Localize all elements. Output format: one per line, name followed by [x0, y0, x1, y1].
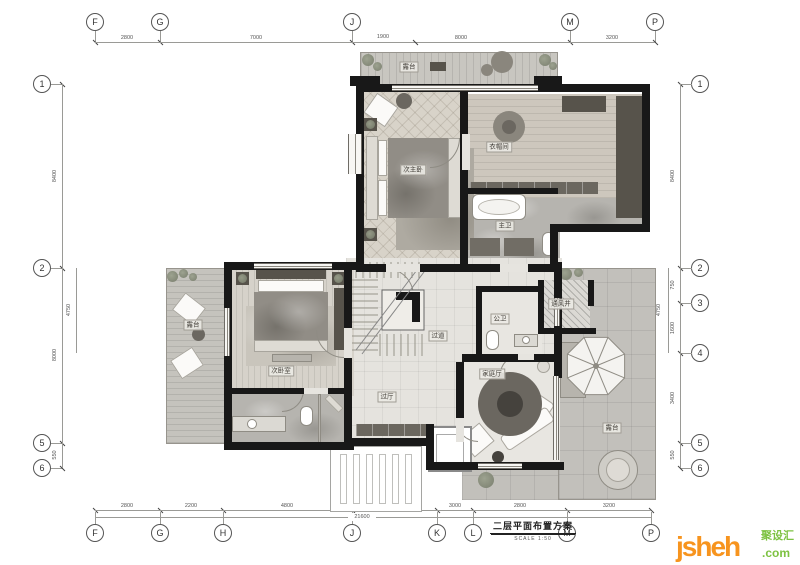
dim-text: 550	[669, 444, 677, 466]
wall	[588, 280, 594, 306]
plant	[238, 274, 247, 283]
door-opening	[456, 418, 464, 442]
grid-bubble-right: 2	[691, 259, 709, 277]
staircase	[350, 260, 428, 358]
grid-line	[95, 512, 96, 524]
wall	[538, 280, 544, 334]
bathtub-basin	[478, 199, 520, 215]
dim-text: 4800	[273, 502, 301, 510]
pillows	[258, 280, 324, 292]
plant	[362, 54, 374, 66]
room-label-corridor: 过道	[429, 331, 448, 342]
grid-bubble-bottom: F	[86, 524, 104, 542]
toilet	[300, 406, 313, 426]
pillow	[378, 180, 387, 216]
dim-text: 8400	[669, 165, 677, 187]
dim-text: 1600	[669, 317, 677, 339]
sideboard	[356, 424, 428, 436]
plant	[478, 472, 494, 488]
dim-line-left-inner	[76, 268, 77, 353]
grid-bubble-top: P	[646, 13, 664, 31]
dim-line-top	[95, 42, 655, 43]
room-label-secondary-bed: 次卧室	[268, 366, 294, 377]
pergola-slat	[405, 454, 412, 504]
dim-text: 8400	[51, 165, 59, 187]
coffee-table	[430, 62, 446, 71]
vanity-counter	[232, 416, 286, 432]
grid-bubble-left: 2	[33, 259, 51, 277]
window	[478, 463, 522, 469]
drawing-title-block: 二层平面布置方案 SCALE 1:50	[488, 516, 578, 542]
door-opening	[500, 264, 528, 272]
pillow	[378, 140, 387, 176]
dim-text: 4750	[655, 299, 663, 321]
plant	[189, 273, 197, 281]
wall	[538, 328, 596, 334]
drawing-scale: SCALE 1:50	[488, 536, 578, 542]
dim-line-right	[680, 84, 681, 468]
window	[553, 376, 559, 460]
grid-bubble-left: 6	[33, 459, 51, 477]
floor-terrace-right-strip	[462, 468, 558, 500]
wall	[466, 188, 558, 194]
door-opening	[386, 264, 420, 272]
sink	[522, 336, 530, 344]
pergola-slat	[340, 454, 347, 504]
pergola-slat	[379, 454, 386, 504]
grid-bubble-left: 1	[33, 75, 51, 93]
jsheh-watermark-logo: jsheh 聚设汇 .com	[676, 525, 794, 561]
bath-mat	[504, 238, 534, 256]
round-rug-center	[497, 391, 523, 417]
floor-plan-sheet: FGJMPFGHJKLMP125612345628007000800032001…	[0, 0, 800, 565]
dim-line-left	[62, 84, 63, 468]
dim-text: 2800	[506, 502, 534, 510]
grid-bubble-top: M	[561, 13, 579, 31]
dim-text: 3400	[669, 387, 677, 409]
bed-headboard	[366, 136, 378, 220]
logo-brand-text: jsheh	[676, 531, 739, 563]
shower-partition	[318, 394, 321, 444]
wall	[460, 92, 468, 268]
window	[348, 134, 362, 174]
plant	[366, 230, 375, 239]
dim-text: 2800	[113, 502, 141, 510]
room-label-terrace-right: 露台	[603, 423, 622, 434]
grid-line	[473, 512, 474, 524]
grid-bubble-left: 5	[33, 434, 51, 452]
cabinet	[562, 96, 606, 112]
window	[392, 85, 538, 91]
bed-sheet	[254, 340, 328, 352]
dim-text: 3200	[595, 502, 623, 510]
room-label-terrace-top: 露台	[400, 62, 419, 73]
round-chair-seat	[606, 458, 630, 482]
pergola-slat	[366, 454, 373, 504]
wall	[642, 84, 650, 232]
wall	[550, 224, 650, 232]
grid-bubble-right: 6	[691, 459, 709, 477]
dim-text: 8000	[447, 34, 475, 42]
dim-text: 8000	[51, 344, 59, 366]
grid-bubble-right: 5	[691, 434, 709, 452]
window	[254, 263, 332, 269]
room-label-master-bath: 主卫	[496, 221, 515, 232]
plant	[373, 62, 382, 71]
wall	[350, 76, 380, 86]
grid-bubble-bottom: H	[214, 524, 232, 542]
wall	[224, 262, 232, 450]
bed-headboard	[256, 270, 326, 279]
grid-bubble-right: 4	[691, 344, 709, 362]
room-label-cloakroom: 衣帽间	[486, 142, 512, 153]
plant	[366, 120, 375, 129]
room-label-second-master: 次主卧	[400, 165, 426, 176]
dim-text: 4750	[65, 299, 73, 321]
wall	[356, 84, 364, 272]
stool	[396, 93, 412, 109]
grid-bubble-top: J	[343, 13, 361, 31]
window	[224, 308, 230, 356]
grid-line	[223, 512, 224, 524]
wall	[534, 76, 562, 88]
dim-text: 550	[51, 444, 59, 466]
pergola-slat	[353, 454, 360, 504]
dim-text-overall: 21600	[348, 513, 376, 521]
bath-mat	[470, 238, 500, 256]
pergola-slat	[392, 454, 399, 504]
round-table	[491, 51, 513, 73]
dim-text: 1900	[370, 33, 396, 41]
wardrobe	[616, 96, 642, 218]
door-opening	[344, 328, 352, 358]
plant	[549, 62, 557, 70]
plant	[179, 269, 188, 278]
wall	[224, 442, 354, 450]
wall	[426, 424, 434, 468]
dim-text: 2200	[177, 502, 205, 510]
plant	[334, 274, 343, 283]
patio-umbrella	[562, 332, 630, 400]
room-label-guest-bath: 公卫	[491, 314, 510, 325]
grid-bubble-right: 3	[691, 294, 709, 312]
wall	[228, 388, 348, 394]
grid-bubble-top: G	[151, 13, 169, 31]
grid-bubble-bottom: J	[343, 524, 361, 542]
grid-bubble-right: 1	[691, 75, 709, 93]
room-label-hallway: 过厅	[378, 392, 397, 403]
room-label-vent-shaft: 通风井	[548, 299, 574, 310]
logo-tld-text: .com	[762, 546, 790, 560]
wall	[476, 286, 482, 360]
sink	[247, 419, 257, 429]
door-opening	[518, 354, 534, 360]
grid-line	[437, 512, 438, 524]
grid-line	[160, 512, 161, 524]
plant	[167, 271, 178, 282]
grid-bubble-bottom: L	[464, 524, 482, 542]
dim-text: 750	[669, 274, 677, 296]
grid-bubble-top: F	[86, 13, 104, 31]
wall	[346, 438, 432, 446]
grid-bubble-bottom: P	[642, 524, 660, 542]
grid-line	[651, 512, 652, 524]
dim-text: 2800	[113, 34, 141, 42]
room-label-terrace-left: 露台	[184, 320, 203, 331]
dim-text: 3200	[598, 34, 626, 42]
bench	[272, 354, 312, 362]
round-rug-center	[502, 120, 516, 134]
wall	[476, 354, 520, 360]
door-opening	[462, 134, 470, 170]
dim-text: 7000	[242, 34, 270, 42]
pouf	[481, 64, 493, 76]
plant	[574, 268, 583, 277]
grid-bubble-bottom: K	[428, 524, 446, 542]
door-opening	[304, 388, 328, 394]
dim-text: 3000	[441, 502, 469, 510]
wall	[476, 286, 544, 292]
logo-chinese-text: 聚设汇	[761, 527, 794, 543]
drawing-title: 二层平面布置方案	[490, 519, 576, 534]
grid-bubble-bottom: G	[151, 524, 169, 542]
room-label-family-room: 家庭厅	[479, 369, 505, 380]
toilet	[486, 330, 499, 350]
